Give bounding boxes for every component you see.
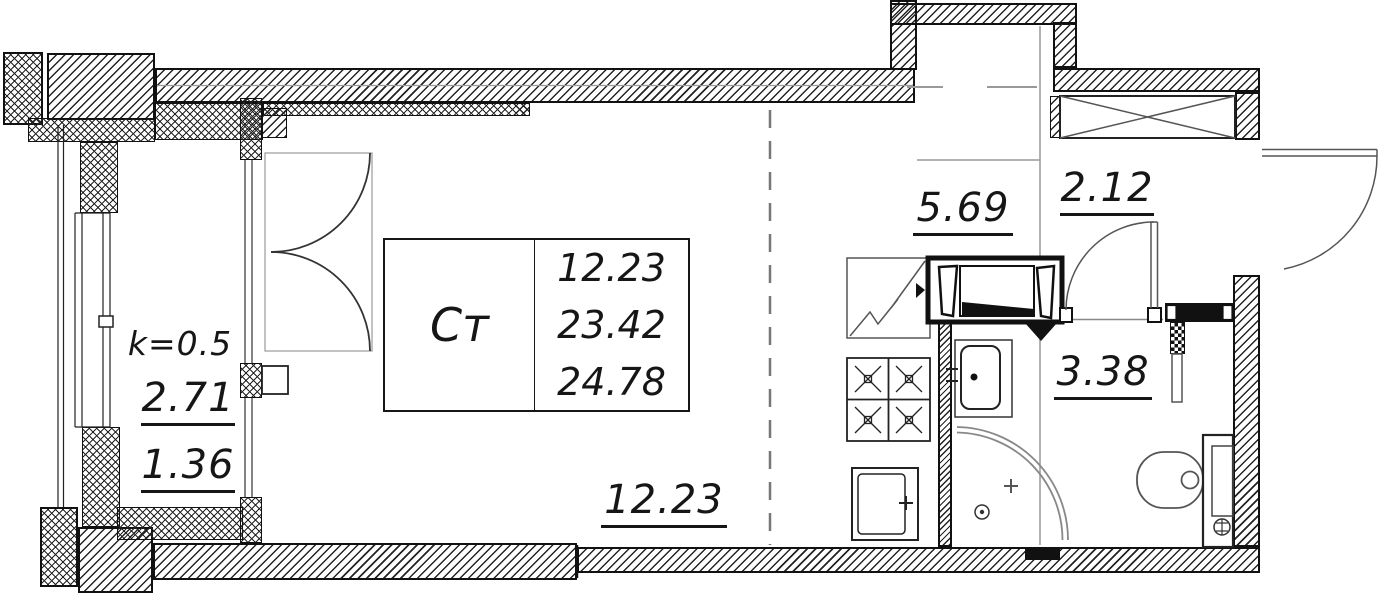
balcony-coefficient-label: k=0.5 <box>120 327 240 362</box>
stove <box>847 358 930 441</box>
hall-area-label: 2.12 <box>1060 167 1154 216</box>
bath-duct-wall <box>1165 303 1235 402</box>
unit-area-living-cell: 12.23 <box>535 240 688 297</box>
shower <box>957 427 1068 540</box>
balcony-window-frames <box>245 160 288 497</box>
washbasin <box>946 340 1012 417</box>
bath-area-label: 3.38 <box>1054 351 1152 400</box>
entrance-door-swing <box>1262 150 1377 270</box>
unit-type-cell: Ст <box>385 240 535 410</box>
unit-area-total-balcony-cell: 24.78 <box>535 353 688 410</box>
direction-arrow <box>1025 323 1057 341</box>
kitchen-area-label: 5.69 <box>913 187 1013 236</box>
living-area-label: 12.23 <box>601 479 727 528</box>
ventilation-block <box>928 258 1062 341</box>
unit-area-total-cell: 23.42 <box>535 297 688 354</box>
balcony-door-swing <box>265 153 372 351</box>
bathroom-door-swing <box>1060 222 1161 322</box>
balcony-glazing <box>58 125 113 507</box>
kitchen-counter <box>847 258 930 338</box>
unit-info-table: Ст 12.23 23.42 24.78 <box>383 238 690 412</box>
wardrobe <box>1060 96 1235 138</box>
kitchen-sink <box>852 468 918 540</box>
balcony-area-full-label: 2.71 <box>141 377 235 426</box>
balcony-area-reduced-label: 1.36 <box>141 444 235 493</box>
toilet <box>1137 435 1233 547</box>
floor-plan: k=0.5 2.71 1.36 5.69 2.12 3.38 12.23 Ст … <box>0 0 1382 600</box>
